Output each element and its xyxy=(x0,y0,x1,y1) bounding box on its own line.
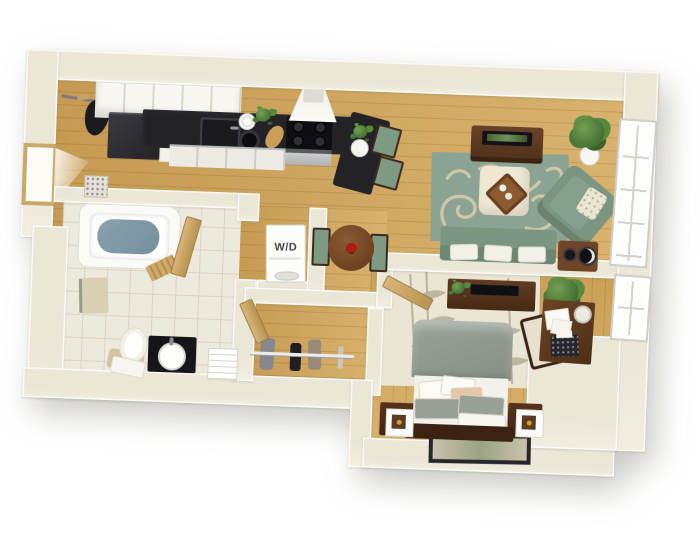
washer-dryer-vent xyxy=(275,272,299,281)
sofa-pillow-1 xyxy=(450,244,478,260)
bathtub-water-mat xyxy=(97,219,160,255)
range-hood-chimney xyxy=(303,89,323,103)
cube-lamp-left xyxy=(385,408,414,437)
faucet xyxy=(230,126,238,129)
radio-speaker-small xyxy=(563,248,578,263)
wall-towel xyxy=(82,277,109,313)
ottoman xyxy=(478,166,530,217)
cube-lamp-right xyxy=(515,409,544,438)
floorplan-stage: W/D xyxy=(0,0,700,538)
vanity xyxy=(147,336,196,374)
typewriter-paper xyxy=(556,331,572,339)
radio-speaker-large xyxy=(578,246,598,266)
front-door-opening xyxy=(26,147,54,202)
kitchen-sink xyxy=(200,117,241,148)
washer-dryer-label: W/D xyxy=(267,242,305,254)
vanity-faucet xyxy=(169,337,173,345)
headboard xyxy=(405,423,513,442)
living-window-glass xyxy=(615,124,651,262)
apartment-floorplan: W/D xyxy=(12,49,658,478)
oven-front xyxy=(285,148,332,166)
washer-dryer: W/D xyxy=(266,225,306,283)
towel-shelf xyxy=(207,348,238,381)
bedroom-window-glass xyxy=(616,280,646,336)
sofa-pillow-3 xyxy=(518,247,546,263)
washer-dryer-seam xyxy=(269,258,301,260)
tv-screen xyxy=(487,134,527,142)
sofa xyxy=(440,226,557,264)
sofa-pillow-2 xyxy=(483,244,512,262)
bed-blanket xyxy=(411,319,513,381)
tv xyxy=(482,131,532,147)
lower-cabinets xyxy=(169,144,286,170)
dresser-tv xyxy=(470,284,518,296)
bed-pillow-gray-1 xyxy=(414,398,462,419)
wall-bath-right-upper xyxy=(237,193,260,222)
typewriter xyxy=(550,334,579,357)
bed xyxy=(409,319,516,449)
radio-side-table xyxy=(557,241,598,272)
vanity-sink xyxy=(157,342,186,371)
door-mat xyxy=(84,175,109,198)
bedroom-window xyxy=(610,274,653,343)
